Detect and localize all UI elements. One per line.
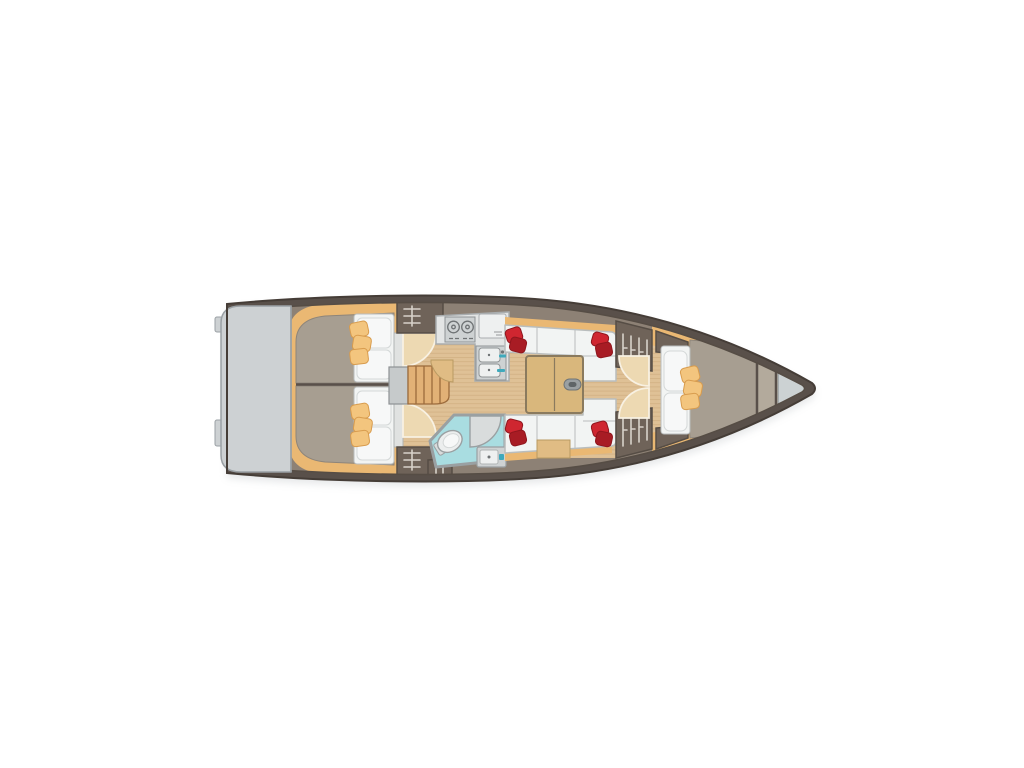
- settee-step: [537, 440, 570, 458]
- saloon-table: [526, 356, 583, 413]
- head-basin: [477, 447, 506, 467]
- engine-step-box: [389, 367, 408, 404]
- vent-icon: [404, 306, 420, 326]
- aft-cabin-port: [296, 313, 394, 383]
- vent-icon: [404, 450, 420, 470]
- galley-worktop: [479, 314, 506, 338]
- aft-cabin-starboard: [296, 386, 394, 465]
- boat-floorplan: [0, 0, 1024, 768]
- forward-cabin: [661, 340, 807, 438]
- table-handle-slot: [569, 382, 577, 387]
- sink-basins: [479, 348, 500, 377]
- swim-platform: [221, 306, 291, 472]
